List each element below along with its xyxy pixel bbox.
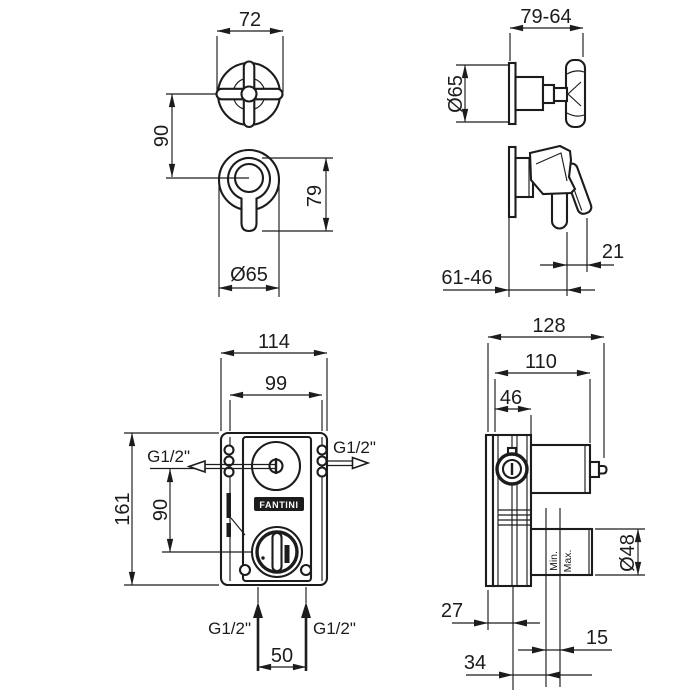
lever-hub-side [530, 146, 575, 194]
dim-label-body-inner-width: 99 [265, 373, 287, 395]
screw-hole-left [240, 565, 250, 575]
view-cross-handle-front: 72 90 [151, 9, 283, 177]
drawing-canvas: 72 90 79 [0, 0, 700, 700]
view-lever-handle-front: 79 Ø65 [166, 150, 333, 297]
port-label-bottom-right: G1/2" [313, 619, 356, 638]
side-label-bar [227, 493, 232, 518]
wall-ref-min-label: Min. [548, 551, 560, 571]
view-lever-handle-side: 21 61-46 [441, 146, 624, 297]
port-label-side-left: G1/2" [147, 447, 190, 466]
dim-wall-offset-back: 27 [441, 600, 540, 627]
dim-label-body-height: 161 [112, 492, 134, 525]
port-bottom-left: G1/2" [208, 587, 263, 671]
port-label-side-right: G1/2" [333, 438, 376, 457]
dim-label-port-center-gap: 90 [150, 499, 172, 521]
dim-center-to-wall: 34 [464, 652, 592, 679]
outlet-stub [590, 462, 599, 477]
dim-label-cross-width: 72 [239, 9, 261, 31]
dim-outlet-dia: Ø48 [595, 529, 645, 575]
view-cross-handle-side: 79-64 Ø65 [445, 6, 585, 127]
dim-label-wall-thickness-range: 15 [586, 627, 608, 649]
cartridge-box-side [531, 445, 590, 493]
wall-ref-max-label: Max. [562, 550, 574, 573]
dim-label-lever-depth-range: 61-46 [441, 267, 492, 289]
port-label-bottom-left: G1/2" [208, 619, 251, 638]
side-label-bar2 [227, 523, 232, 537]
dim-inlet-spacing: 50 [258, 645, 306, 667]
dim-side-depth-range: 79-64 [510, 6, 583, 61]
screw-hole-right [301, 565, 311, 575]
lever-stem-side [552, 189, 567, 229]
dim-label-lever-overhang: 21 [602, 241, 624, 263]
dim-label-side-depth-range: 79-64 [520, 6, 571, 28]
dim-label-side-plate-dia: Ø65 [445, 75, 467, 113]
dim-side-plate-dia: Ø65 [445, 65, 508, 122]
dim-label-outlet-dia: Ø48 [617, 534, 639, 572]
dim-label-inlet-spacing: 50 [271, 645, 293, 667]
dim-label-center-to-wall: 34 [464, 652, 486, 674]
dim-label-front-plate-dia: Ø65 [230, 264, 268, 286]
cross-hub [242, 87, 257, 102]
technical-drawing: 72 90 79 [0, 0, 700, 700]
dim-label-front-center-gap: 90 [151, 125, 173, 147]
dim-lever-depth-range: 61-46 [441, 217, 595, 297]
port-side-right: G1/2" [328, 438, 376, 469]
dim-label-depth-front: 46 [500, 387, 522, 409]
dim-front-center-gap: 90 [151, 94, 173, 177]
fantini-logo-text: FANTINI [259, 500, 298, 510]
view-mixer-body-front: 114 99 G1/2" [112, 331, 376, 671]
dim-body-inner-width: 99 [230, 373, 322, 431]
dim-lever-overhang: 21 [540, 218, 624, 296]
view-mixer-body-side: 128 110 46 [441, 315, 645, 690]
dim-wall-thickness-range: 15 [518, 627, 612, 654]
dim-label-lever-span: 79 [304, 185, 326, 207]
dim-label-wall-offset-back: 27 [441, 600, 463, 622]
dim-label-depth-box: 110 [525, 351, 557, 373]
port-bottom-right: G1/2" [301, 587, 356, 671]
dim-label-depth-overall: 128 [532, 315, 565, 337]
dim-label-body-overall-width: 114 [258, 331, 290, 353]
